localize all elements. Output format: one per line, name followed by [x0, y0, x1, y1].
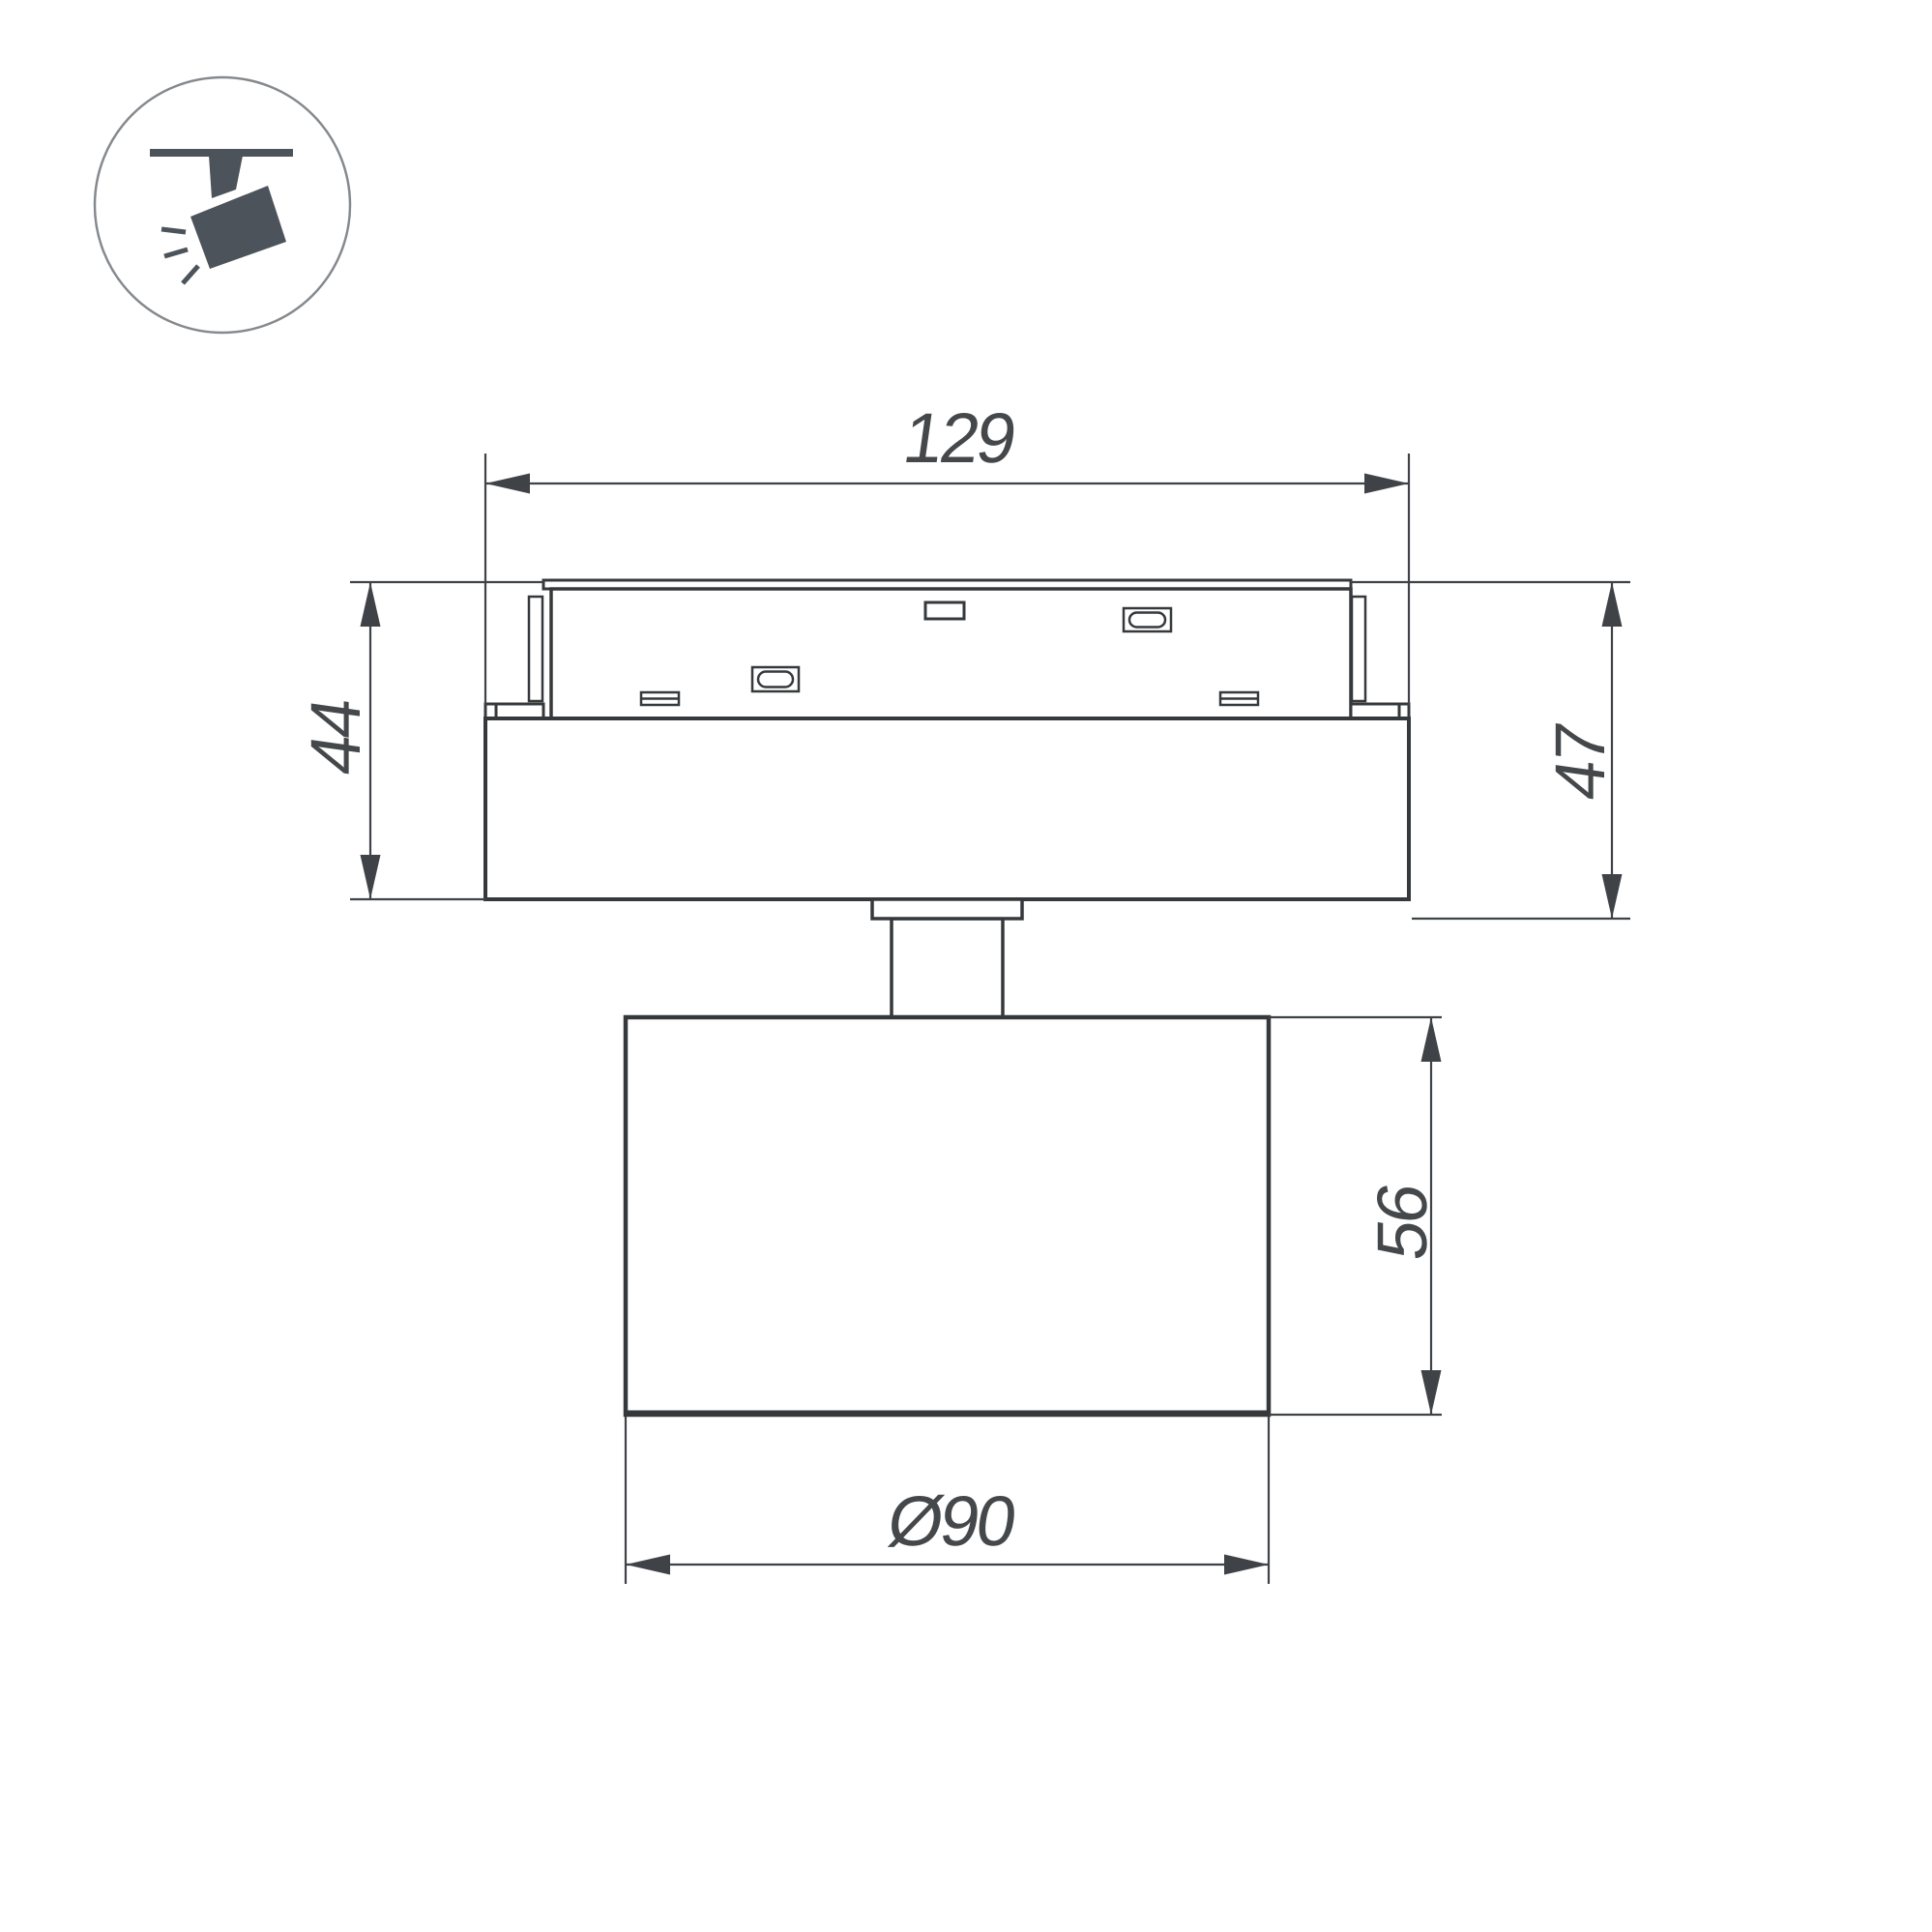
arrow-right-icon	[1364, 474, 1409, 494]
technical-drawing-page: 129 44 47 56 Ø90	[0, 0, 1932, 1932]
icon-ceiling-bar	[150, 149, 293, 157]
arrow-down-icon	[1602, 874, 1623, 919]
dim-label-right-height: 47	[1540, 720, 1620, 805]
technical-drawing-svg: 129 44 47 56 Ø90	[0, 0, 1932, 1932]
track-spotlight-icon	[95, 77, 350, 333]
base-lip-right	[1351, 704, 1409, 718]
arrow-up-icon	[361, 582, 381, 627]
base-lip-left	[485, 704, 543, 718]
arrow-left-icon	[485, 474, 530, 494]
arrow-up-icon	[1602, 582, 1623, 627]
dim-label-head-height: 56	[1362, 1181, 1442, 1265]
arrow-up-icon	[1421, 1017, 1442, 1062]
lamp-head-cylinder	[626, 1017, 1269, 1415]
swivel-collar	[872, 899, 1022, 919]
mounting-base	[485, 718, 1409, 899]
arrow-right-icon	[1224, 1555, 1269, 1575]
adapter-clip-right	[1352, 597, 1365, 701]
arrow-down-icon	[1421, 1370, 1442, 1415]
dim-label-track-width: 129	[898, 398, 1018, 478]
fixture-drawing	[485, 580, 1409, 1415]
adapter-clip-left	[529, 597, 542, 701]
arrow-left-icon	[626, 1555, 670, 1575]
arrow-down-icon	[361, 855, 381, 899]
dim-label-head-diameter: Ø90	[883, 1481, 1019, 1561]
swivel-stem	[892, 919, 1003, 1017]
dim-label-left-height: 44	[296, 694, 375, 779]
